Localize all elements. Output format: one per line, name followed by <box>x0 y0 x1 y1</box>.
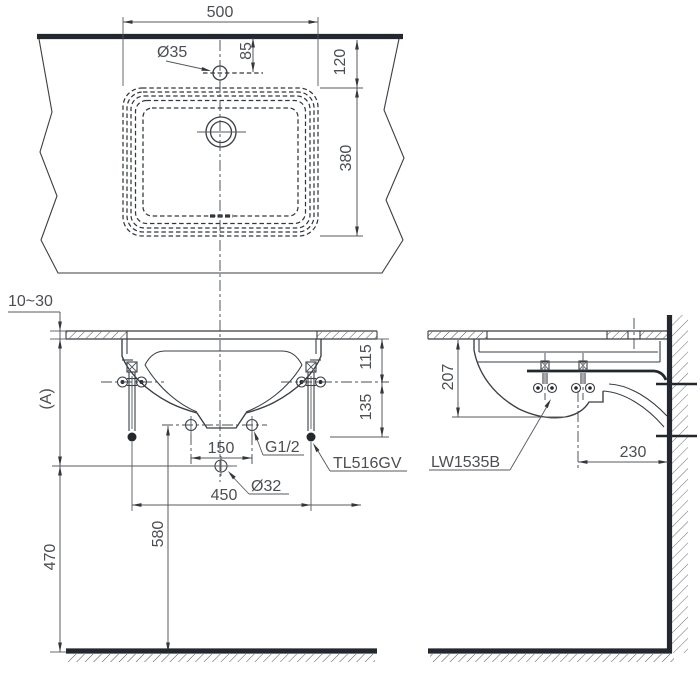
dim-470-text: 470 <box>42 544 59 571</box>
dimension-arrowhead <box>355 88 359 98</box>
label-faucet-hole-text: Ø35 <box>157 44 187 61</box>
dim-230: 230 <box>578 444 668 464</box>
dim-115-135: 115 135 <box>330 339 389 437</box>
dim-500-text: 500 <box>207 4 234 21</box>
front-floor <box>66 651 377 662</box>
wall <box>656 315 697 653</box>
side-floor <box>428 651 674 662</box>
dim-115-text: 115 <box>358 344 375 370</box>
dim-135-text: 135 <box>358 394 375 421</box>
dimension-arrowhead <box>355 227 359 237</box>
dimension-arrowhead <box>243 456 253 460</box>
dimension-arrowhead <box>544 399 551 408</box>
label-basin-model: LW1535B <box>429 399 551 471</box>
dimension-arrowhead <box>355 79 359 89</box>
dim-150: 150 <box>191 440 252 460</box>
dim-A-text: (A) <box>38 388 55 409</box>
side-view: 207 230 LW1535B <box>428 315 697 662</box>
dim-207-text: 207 <box>440 364 457 391</box>
dim-230-text: 230 <box>620 444 647 461</box>
dimension-arrowhead <box>58 457 62 467</box>
label-g12-text: G1/2 <box>265 439 300 456</box>
dim-450: 450 <box>132 442 361 511</box>
dimension-arrowhead <box>201 67 211 71</box>
dimension-arrowhead <box>355 40 359 50</box>
dimension-arrowhead <box>302 503 312 507</box>
side-bolt-front <box>534 353 557 400</box>
dimension-arrowhead <box>123 20 133 24</box>
dimension-arrowhead <box>58 643 62 653</box>
dimension-arrowhead <box>313 443 320 452</box>
dimension-arrowhead <box>309 20 319 24</box>
dimension-arrowhead <box>380 375 384 385</box>
dimension-arrowhead <box>228 471 236 479</box>
dim-380-text: 380 <box>338 145 355 172</box>
side-bolt-back <box>572 353 595 400</box>
dim-150-text: 150 <box>208 440 235 457</box>
dim-120-380: 120 380 <box>320 40 363 236</box>
dimension-arrowhead <box>254 431 259 441</box>
dim-120-text: 120 <box>332 49 349 76</box>
dimension-arrowhead <box>58 339 62 349</box>
dimension-arrowhead <box>578 460 588 464</box>
dim-450-text: 450 <box>211 487 238 504</box>
front-view: 10~30 (A) 470 580 15 <box>8 293 407 662</box>
label-o32-text: Ø32 <box>251 478 281 495</box>
dimension-arrowhead <box>166 426 170 436</box>
dimension-arrowhead <box>58 322 62 332</box>
wall-bracket-bar <box>527 371 666 380</box>
front-basin <box>122 339 321 428</box>
dimension-arrowhead <box>456 408 460 418</box>
dimension-arrowhead <box>58 466 62 476</box>
washbasin-installation-diagram: 500 85 120 380 Ø35 <box>0 0 700 679</box>
dimension-arrowhead <box>251 63 255 73</box>
label-tl516gv-text: TL516GV <box>333 455 402 472</box>
label-faucet-hole: Ø35 <box>157 44 211 71</box>
dim-85: 85 <box>238 38 255 72</box>
dimension-arrowhead <box>132 503 142 507</box>
dimension-arrowhead <box>191 456 201 460</box>
side-basin <box>474 339 667 427</box>
dimension-arrowhead <box>659 460 669 464</box>
dim-85-text: 85 <box>238 42 255 60</box>
dimension-arrowhead <box>380 384 384 394</box>
technical-drawing: 500 85 120 380 Ø35 <box>0 0 700 679</box>
side-counter <box>428 318 668 352</box>
dimension-arrowhead <box>380 339 384 349</box>
drain-top <box>197 117 246 147</box>
label-faucet-model: TL516GV <box>313 443 407 472</box>
dimension-arrowhead <box>352 503 362 507</box>
dimension-arrowhead <box>456 340 460 350</box>
dim-580: 580 <box>150 426 170 652</box>
top-view: 500 85 120 380 Ø35 <box>37 4 404 482</box>
label-lw1535b-text: LW1535B <box>431 454 500 471</box>
basin-hidden-contours <box>123 88 318 236</box>
dimension-arrowhead <box>380 428 384 438</box>
front-counter <box>66 331 377 339</box>
dim-500: 500 <box>123 4 318 86</box>
label-supply-thread: G1/2 <box>254 431 304 456</box>
dim-580-text: 580 <box>150 521 167 548</box>
dim-counter-thickness-text: 10~30 <box>8 293 53 310</box>
